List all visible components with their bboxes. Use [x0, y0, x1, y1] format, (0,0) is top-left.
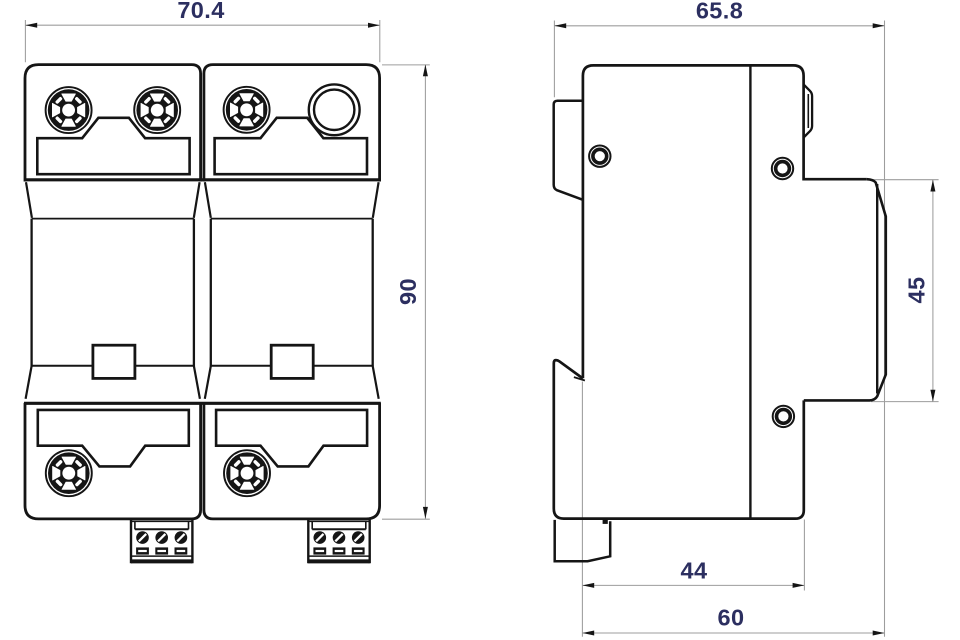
svg-text:44: 44	[681, 557, 708, 583]
svg-text:45: 45	[904, 277, 930, 304]
svg-text:60: 60	[718, 605, 745, 631]
svg-text:90: 90	[395, 278, 421, 305]
svg-text:65.8: 65.8	[696, 0, 743, 24]
svg-text:70.4: 70.4	[177, 0, 224, 23]
